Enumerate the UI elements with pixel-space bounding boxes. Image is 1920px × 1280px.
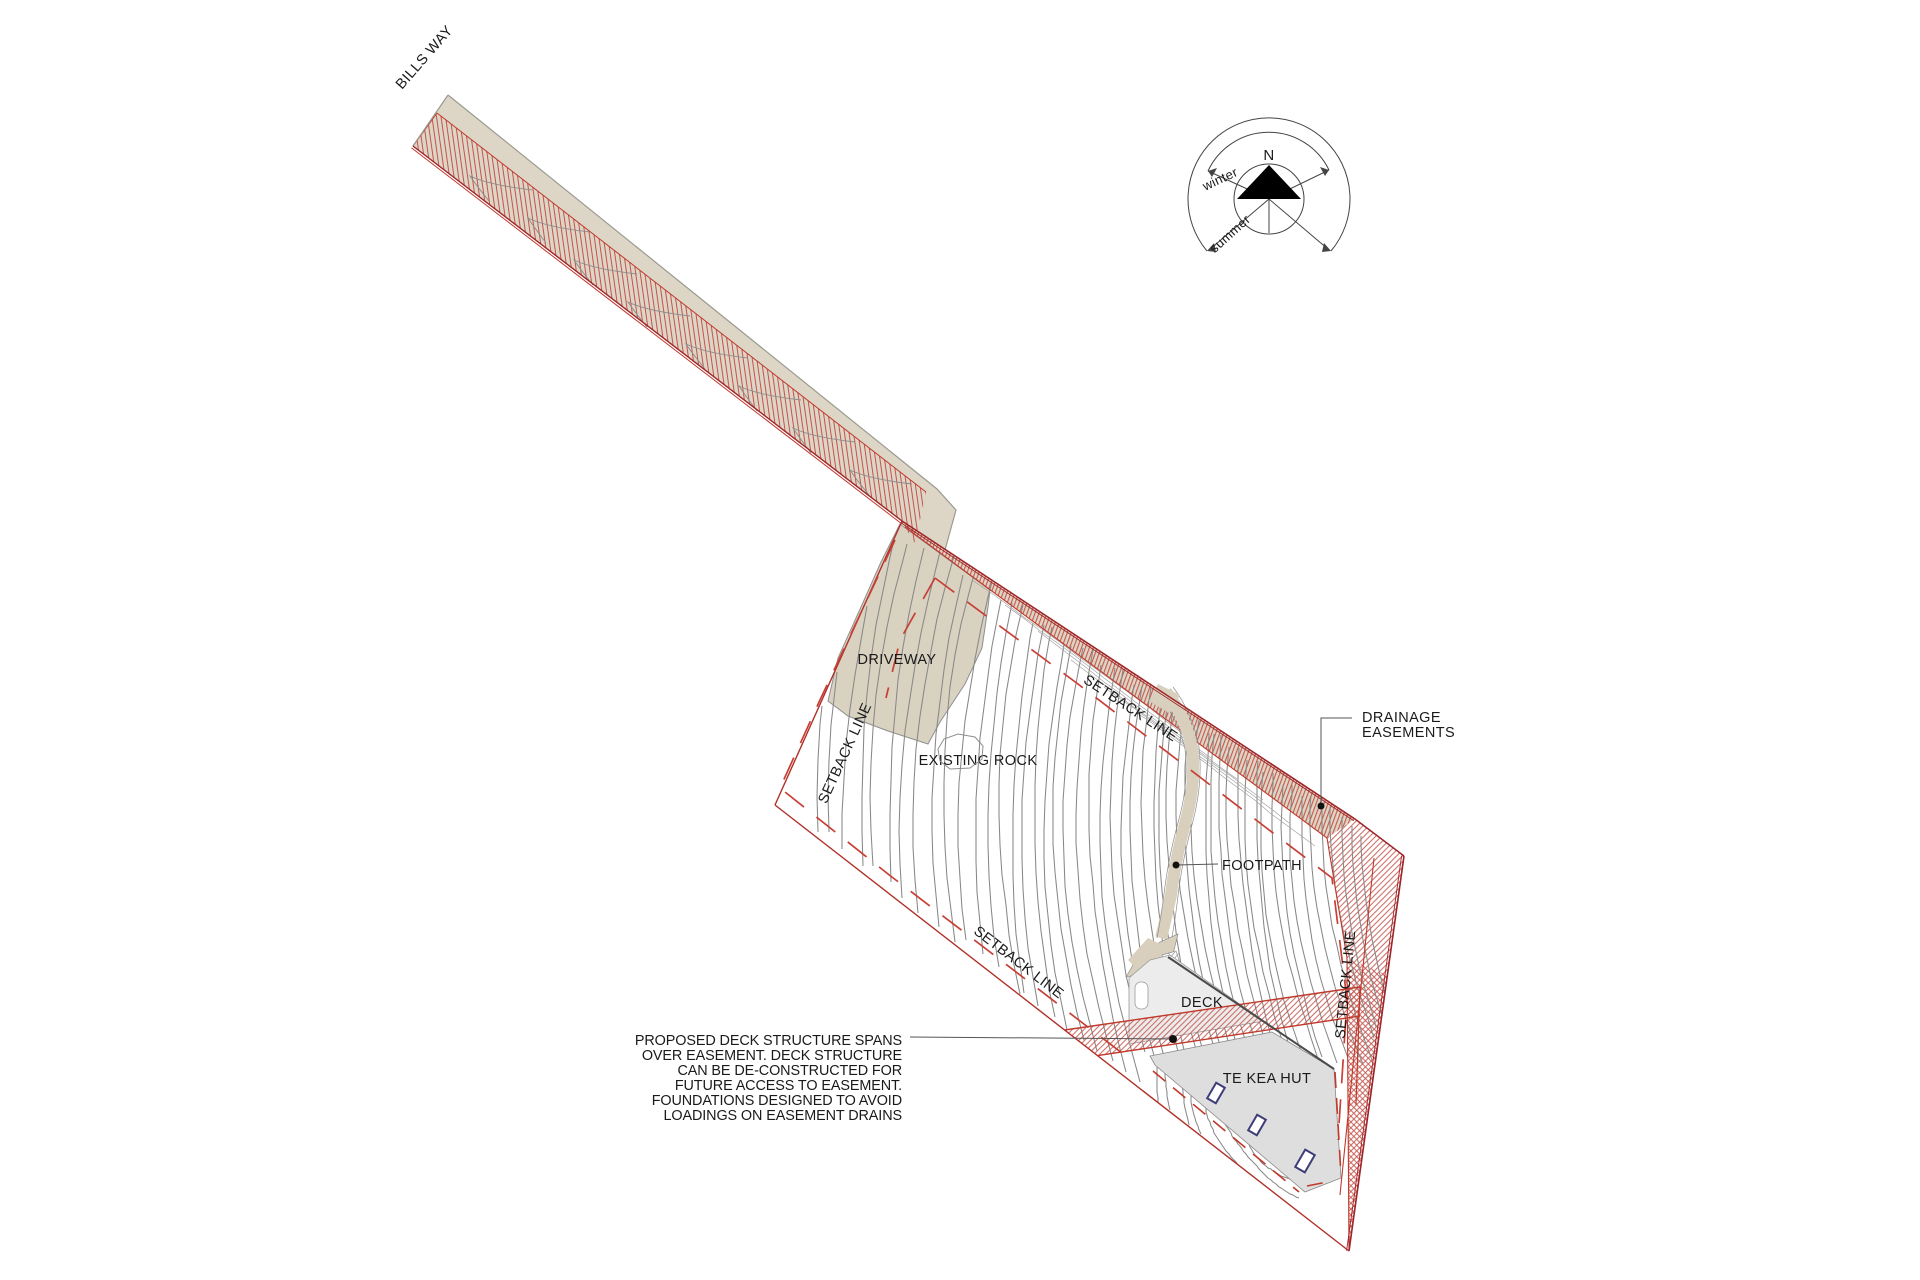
svg-text:FUTURE ACCESS TO EASEMENT.: FUTURE ACCESS TO EASEMENT. [675, 1078, 902, 1094]
svg-text:DRIVEWAY: DRIVEWAY [858, 652, 937, 668]
svg-text:EXISTING ROCK: EXISTING ROCK [919, 753, 1038, 769]
svg-text:LOADINGS ON EASEMENT DRAINS: LOADINGS ON EASEMENT DRAINS [663, 1108, 902, 1124]
svg-text:TE KEA HUT: TE KEA HUT [1223, 1071, 1312, 1087]
svg-text:OVER EASEMENT. DECK STRUCTURE: OVER EASEMENT. DECK STRUCTURE [642, 1048, 902, 1064]
svg-text:DRAINAGE: DRAINAGE [1362, 710, 1441, 726]
svg-text:CAN BE DE-CONSTRUCTED FOR: CAN BE DE-CONSTRUCTED FOR [677, 1063, 902, 1079]
svg-text:N: N [1263, 147, 1274, 164]
svg-text:FOOTPATH: FOOTPATH [1222, 858, 1302, 874]
svg-text:DECK: DECK [1181, 995, 1223, 1011]
svg-text:EASEMENTS: EASEMENTS [1362, 725, 1455, 741]
svg-text:PROPOSED DECK STRUCTURE SPANS: PROPOSED DECK STRUCTURE SPANS [635, 1033, 902, 1049]
svg-text:FOUNDATIONS DESIGNED TO AVOID: FOUNDATIONS DESIGNED TO AVOID [652, 1093, 902, 1109]
